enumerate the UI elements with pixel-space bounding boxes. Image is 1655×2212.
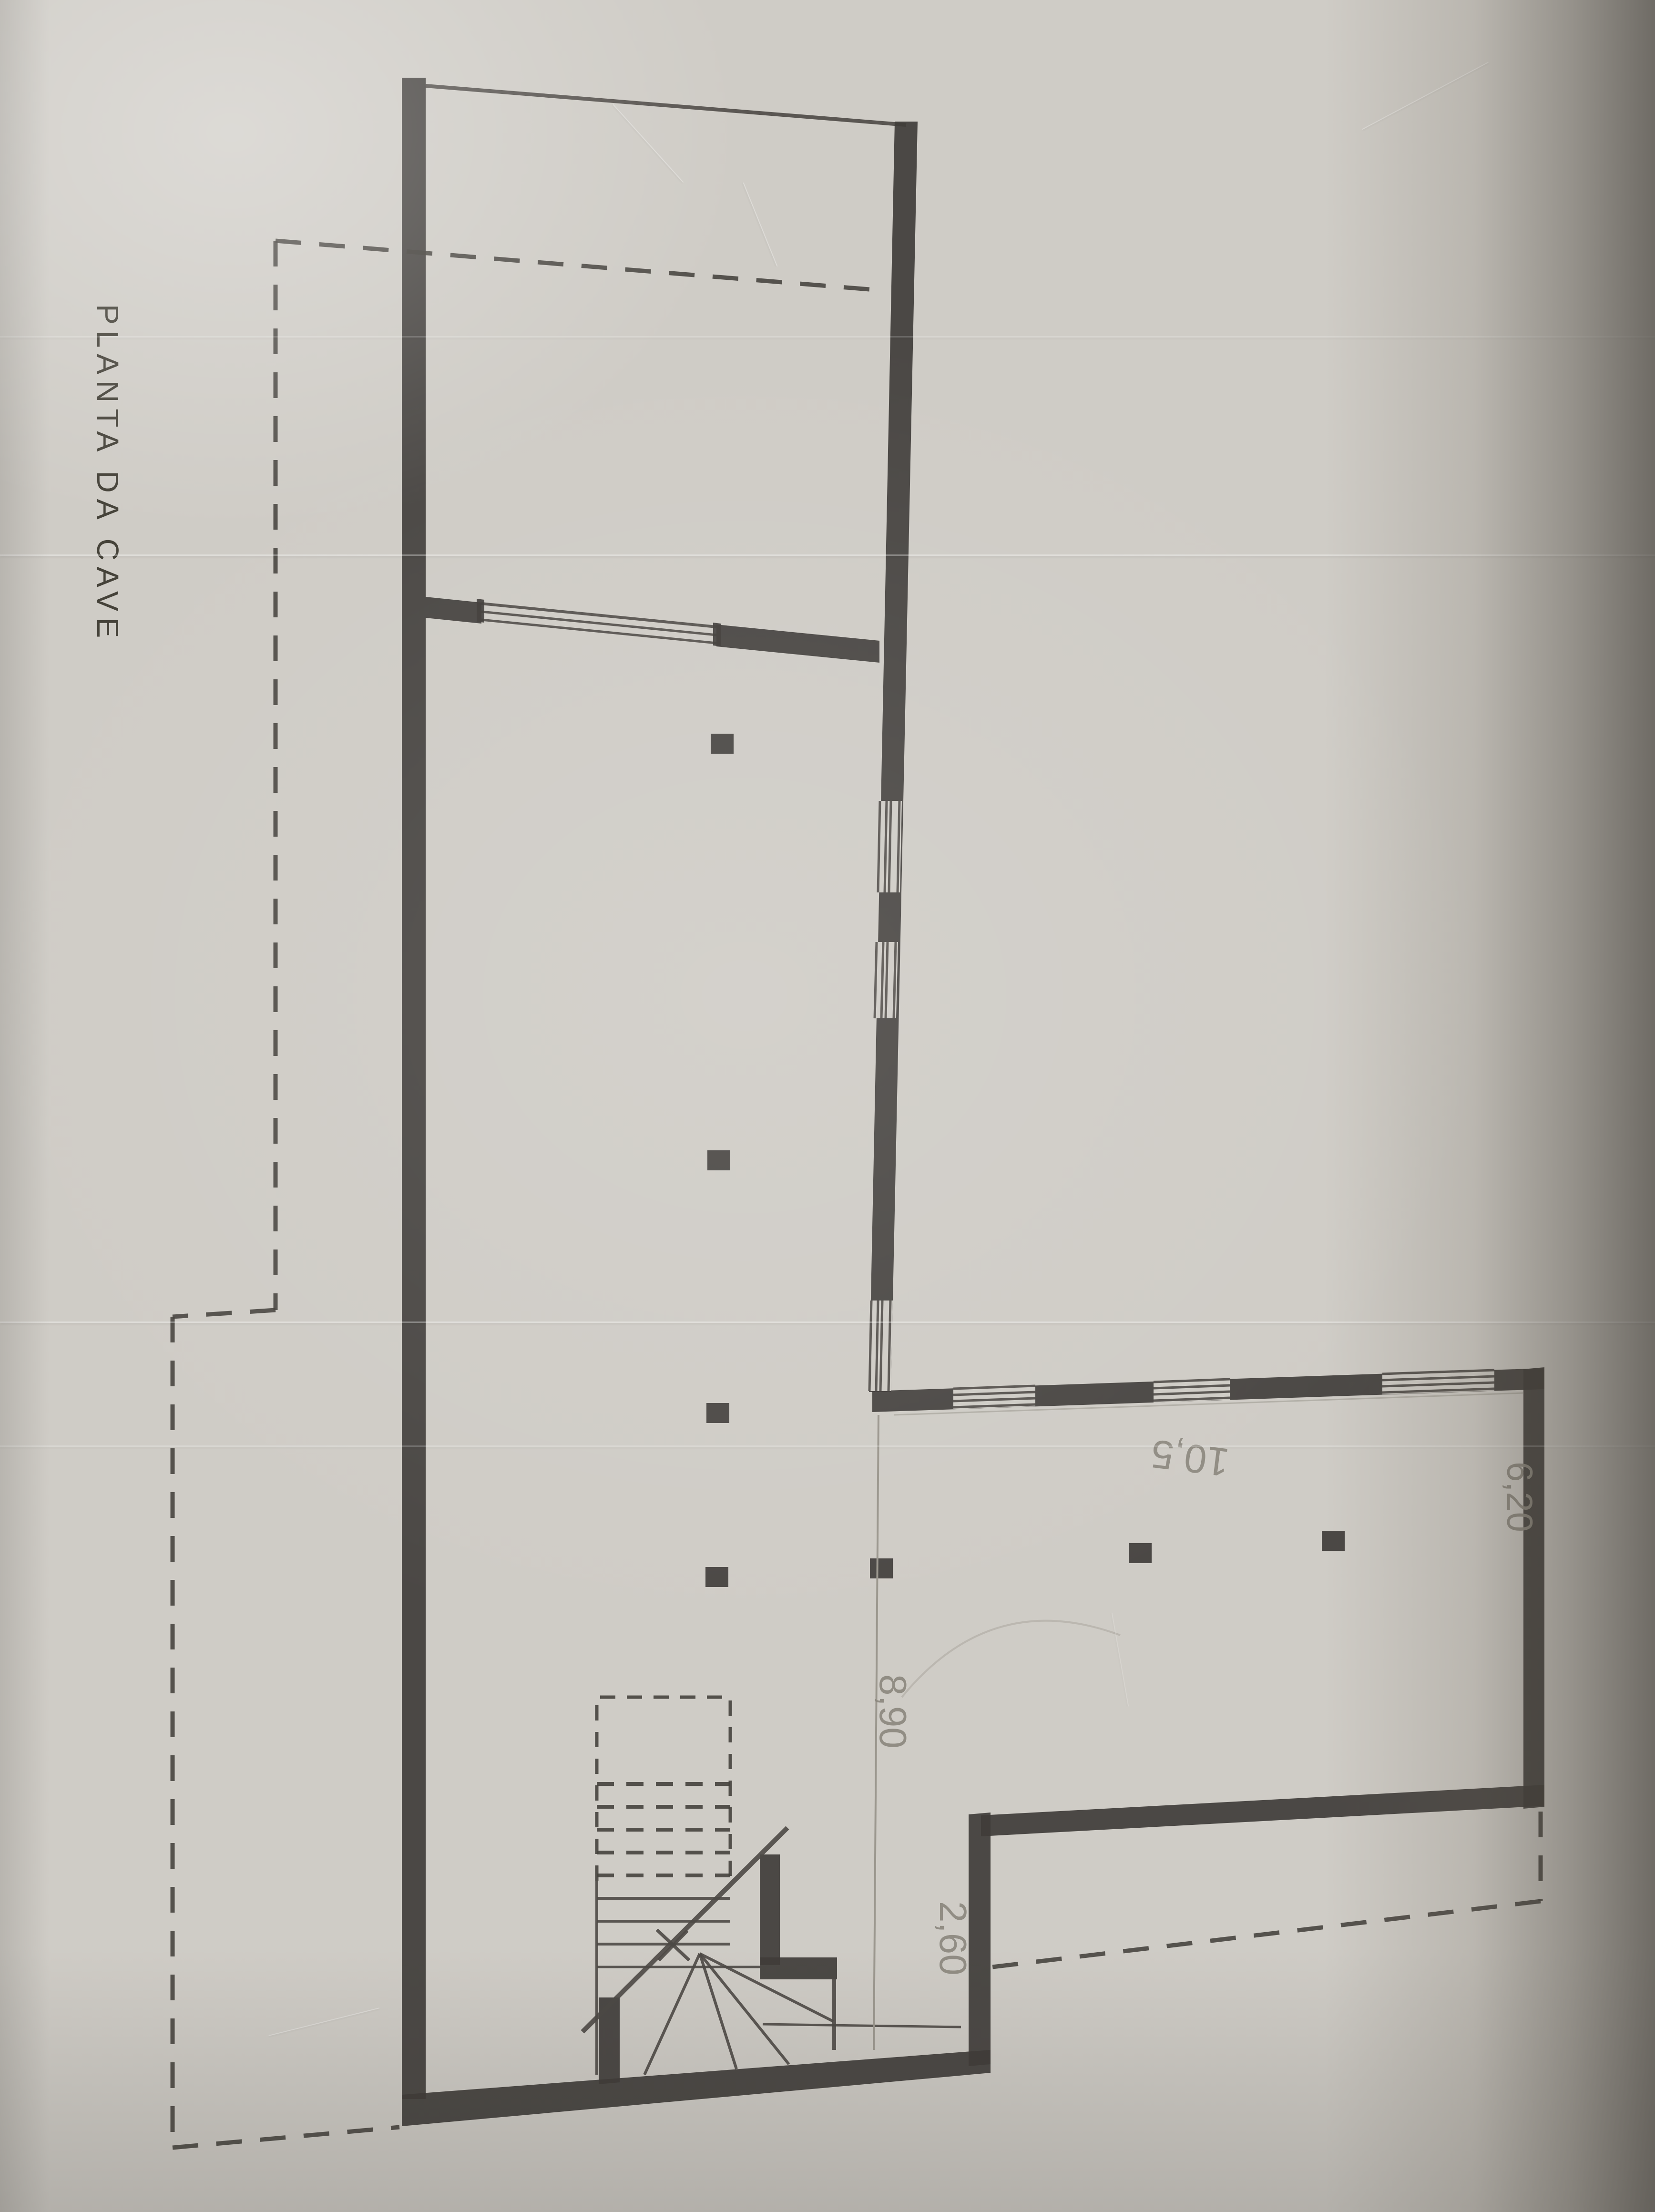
window-right-3 [868, 1301, 893, 1391]
window-hall-1 [953, 1384, 1035, 1409]
wall-interior-right-part [716, 625, 879, 663]
stair-wall-vertical [760, 1854, 780, 1965]
window-right-2 [873, 942, 898, 1018]
exterior-walls [402, 78, 1544, 2126]
stair-direction-line [582, 1828, 787, 2032]
wall-right-upper [869, 122, 918, 1392]
boundary-dashed-lines [173, 241, 1541, 2148]
interior-wall [426, 597, 879, 663]
interior-window [477, 599, 721, 646]
column [711, 734, 734, 754]
column [705, 1567, 728, 1587]
wall-hall-bottom [981, 1785, 1544, 1836]
dim-hall-depth: 6,20 [1499, 1462, 1540, 1532]
wall-left [402, 78, 426, 2099]
stair-dashed-treads [597, 1784, 730, 1875]
column [870, 1558, 893, 1578]
column [706, 1403, 729, 1423]
window-jamb-left [477, 599, 484, 623]
columns [705, 734, 1345, 1587]
stair-solid-treads [597, 1898, 760, 1967]
pencil-arc [902, 1621, 1120, 1697]
floor-plan-drawing: 10,5 6,20 8,90 2,60 PLANTA DA CAVE [0, 0, 1655, 2212]
dim-hall-width: 10,5 [1149, 1431, 1232, 1485]
column [1322, 1531, 1345, 1551]
staircase [582, 1697, 961, 2084]
window-jamb-right [713, 623, 721, 646]
window-openings [868, 801, 1494, 1409]
pencil-annotations: 10,5 6,20 8,90 2,60 [872, 1393, 1540, 2050]
stair-wall-foot [760, 1957, 837, 1979]
dim-passage-width: 2,60 [932, 1901, 974, 1976]
scanned-floor-plan-photo: 10,5 6,20 8,90 2,60 PLANTA DA CAVE [0, 0, 1655, 2212]
plan-title: PLANTA DA CAVE [91, 304, 125, 644]
dim-wing-length: 8,90 [872, 1674, 914, 1749]
window-hall-3 [1382, 1369, 1494, 1394]
window-hall-2 [1154, 1378, 1230, 1403]
column [1129, 1543, 1152, 1563]
wall-top-thin [426, 86, 906, 125]
wall-interior-left-part [426, 597, 481, 624]
column [707, 1150, 730, 1170]
wall-bottom [402, 2050, 991, 2126]
wall-hall-right [1523, 1367, 1544, 1809]
stair-landing-line [763, 2024, 961, 2027]
window-right-1 [876, 801, 902, 892]
